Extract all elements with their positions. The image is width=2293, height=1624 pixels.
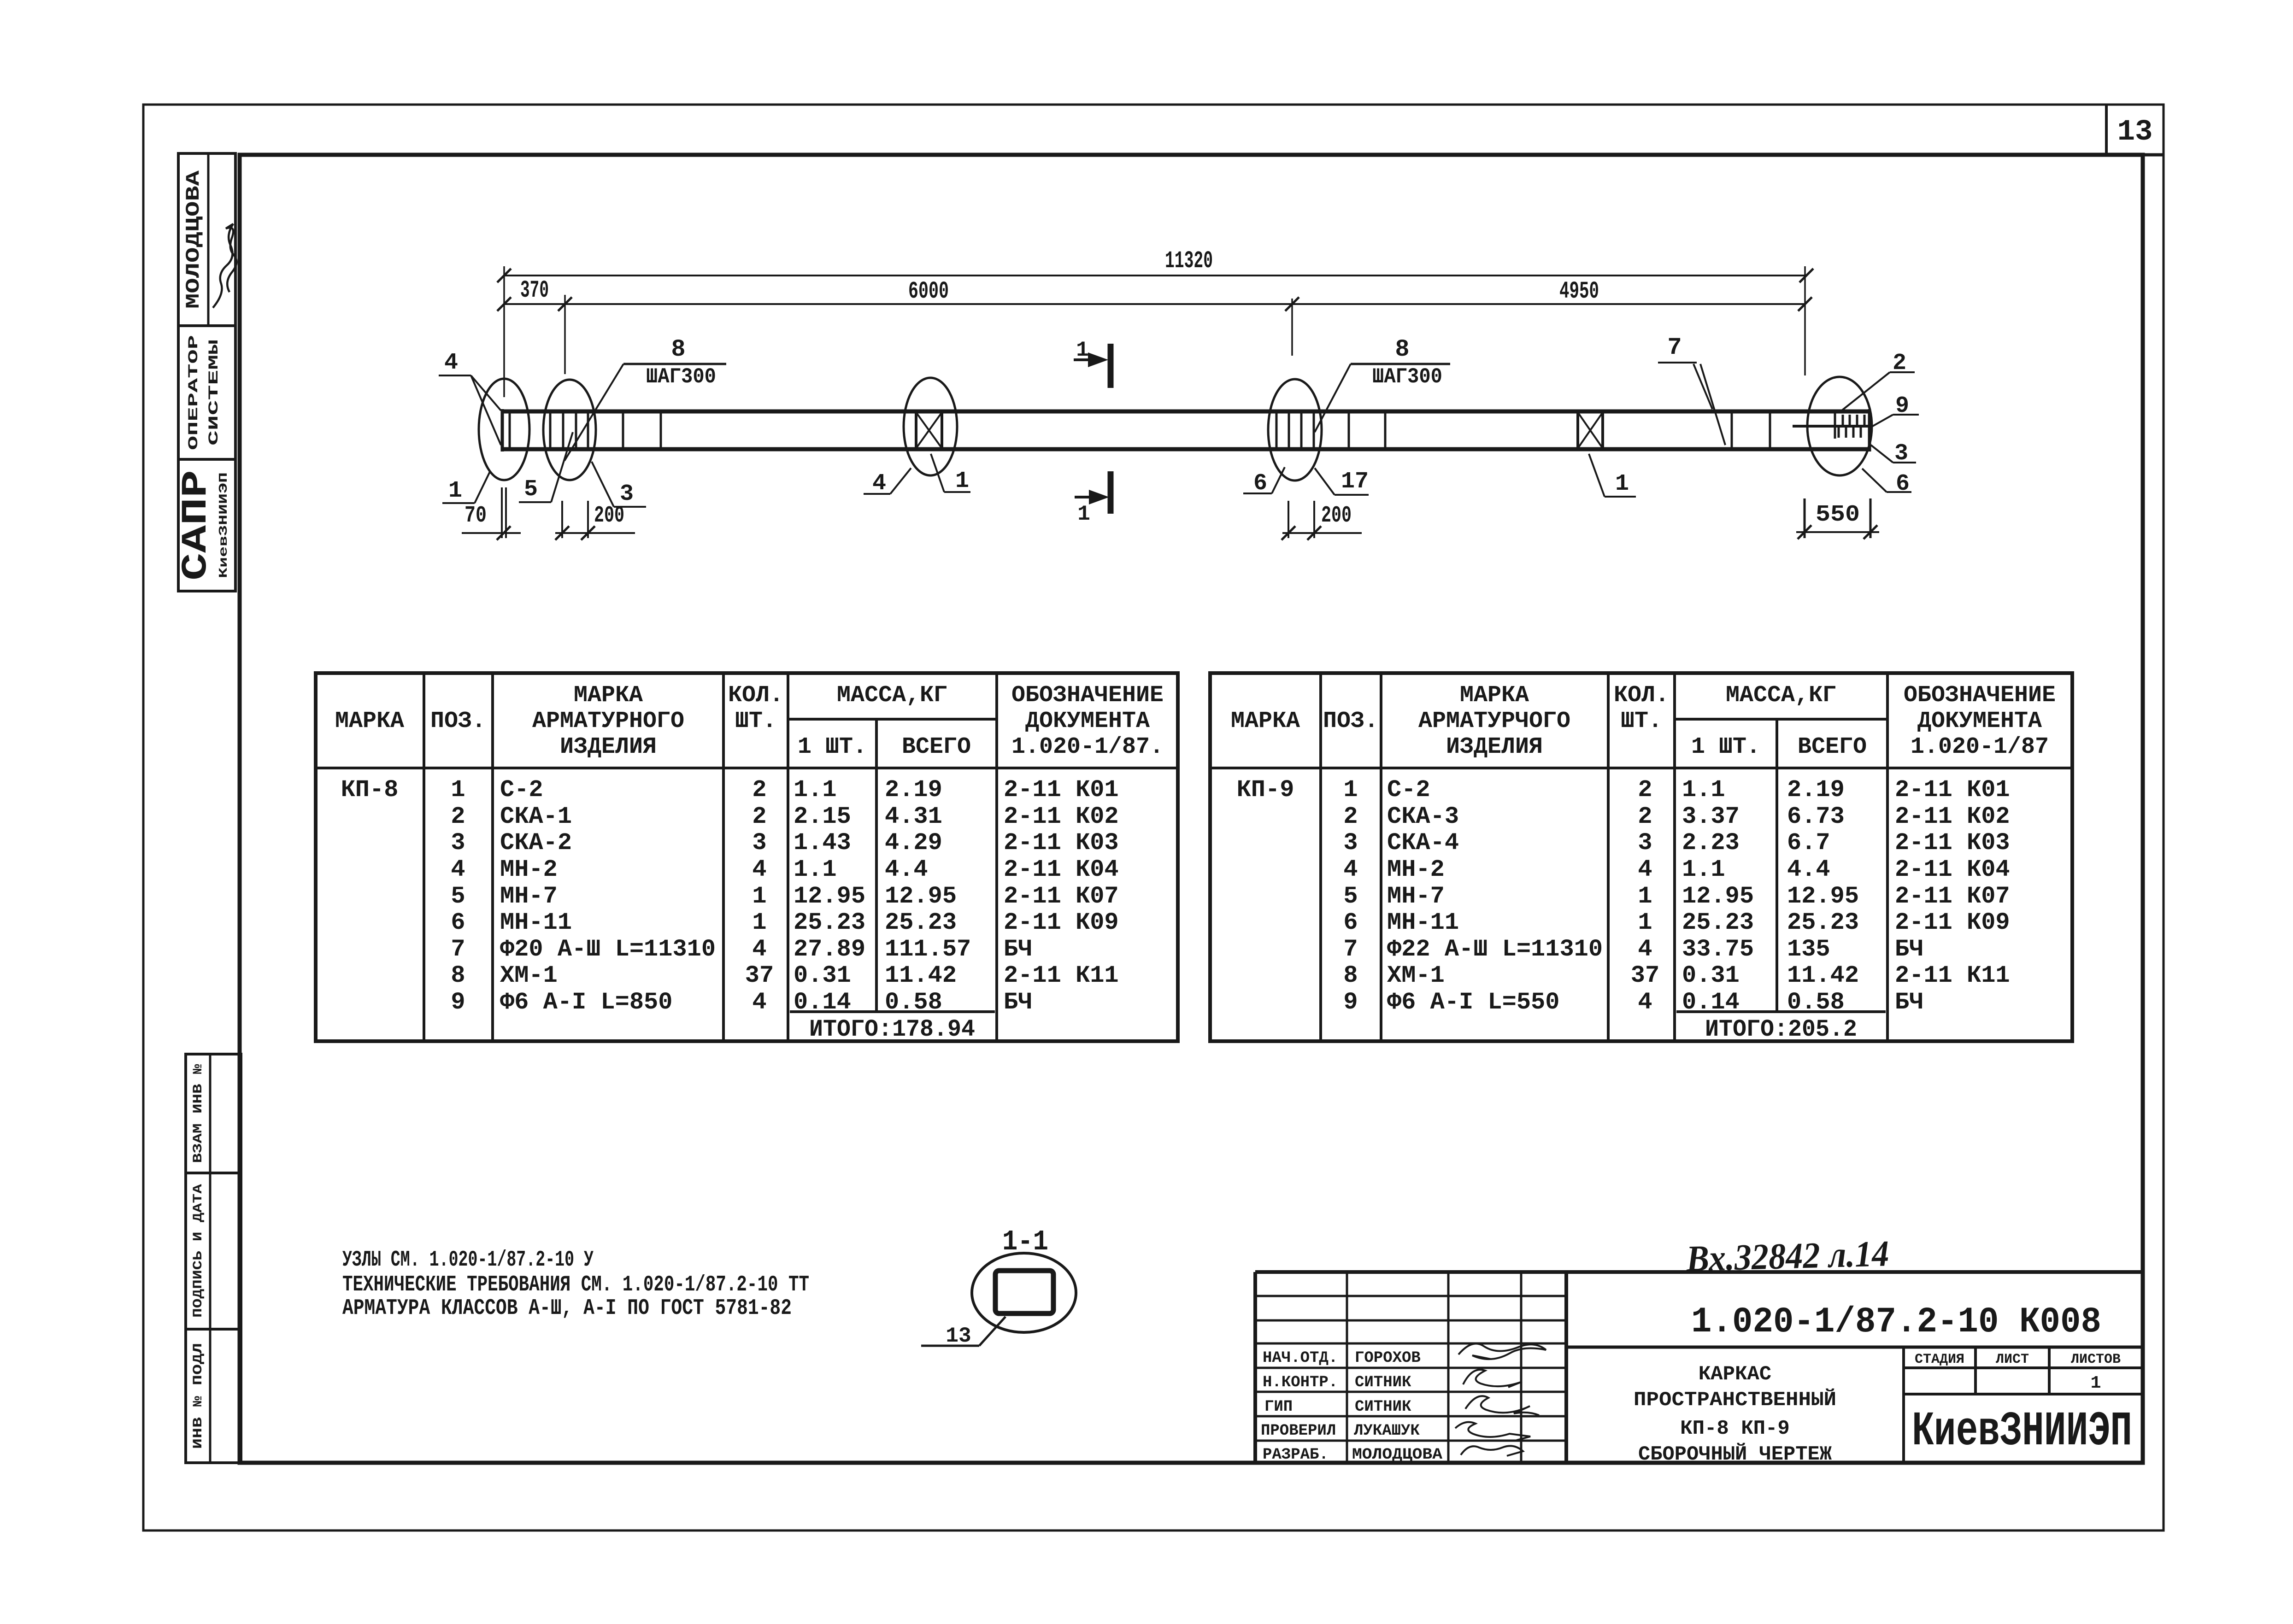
svg-text:4: 4 [451, 856, 465, 883]
svg-text:0.58: 0.58 [885, 989, 942, 1016]
svg-text:0.58: 0.58 [1787, 989, 1845, 1016]
svg-text:МАРКА: МАРКА [574, 682, 643, 709]
svg-text:37: 37 [1631, 962, 1659, 989]
svg-text:ХМ-1: ХМ-1 [500, 962, 558, 989]
svg-text:1: 1 [1638, 883, 1652, 910]
svg-text:3.37: 3.37 [1682, 803, 1740, 830]
svg-text:8: 8 [451, 962, 465, 989]
svg-text:12.95: 12.95 [1682, 883, 1754, 910]
svg-text:САПР: САПР [176, 470, 217, 580]
svg-text:25.23: 25.23 [1682, 909, 1754, 936]
svg-text:6: 6 [1343, 909, 1358, 936]
svg-text:АРМАТУРНОГО: АРМАТУРНОГО [532, 708, 684, 734]
svg-text:4: 4 [872, 470, 886, 497]
svg-text:ПОЗ.: ПОЗ. [430, 708, 486, 734]
svg-text:КП-9: КП-9 [1237, 776, 1294, 803]
svg-text:1.020-1/87.2-10 К008: 1.020-1/87.2-10 К008 [1691, 1302, 2101, 1343]
svg-text:0.31: 0.31 [1682, 962, 1740, 989]
svg-text:4.4: 4.4 [885, 856, 928, 883]
svg-text:9: 9 [451, 989, 465, 1016]
svg-text:КАРКАС: КАРКАС [1699, 1363, 1771, 1386]
svg-text:МАССА,КГ: МАССА,КГ [837, 682, 947, 709]
svg-text:РАЗРАБ.: РАЗРАБ. [1263, 1446, 1329, 1464]
svg-text:6.7: 6.7 [1787, 829, 1830, 856]
svg-text:6.73: 6.73 [1787, 803, 1845, 830]
svg-text:2-11 К11: 2-11 К11 [1004, 962, 1119, 989]
svg-text:МН-2: МН-2 [1387, 856, 1445, 883]
svg-text:8: 8 [671, 336, 685, 363]
svg-text:33.75: 33.75 [1682, 936, 1754, 963]
svg-text:БЧ: БЧ [1004, 989, 1032, 1016]
svg-text:4950: 4950 [1559, 278, 1599, 305]
svg-text:4.31: 4.31 [885, 803, 942, 830]
svg-text:1 ШТ.: 1 ШТ. [798, 734, 867, 760]
svg-text:1: 1 [1077, 502, 1090, 526]
svg-text:111.57: 111.57 [885, 936, 971, 963]
svg-text:УЗЛЫ СМ. 1.020-1/87.2-10 У: УЗЛЫ СМ. 1.020-1/87.2-10 У [342, 1248, 594, 1272]
svg-text:6: 6 [451, 909, 465, 936]
svg-text:2-11 К02: 2-11 К02 [1004, 803, 1119, 830]
svg-text:2-11 К01: 2-11 К01 [1895, 776, 2010, 803]
svg-text:2-11 К09: 2-11 К09 [1004, 909, 1119, 936]
svg-text:2-11 К09: 2-11 К09 [1895, 909, 2010, 936]
svg-text:7: 7 [451, 936, 465, 963]
svg-text:СКА-4: СКА-4 [1387, 829, 1459, 856]
svg-text:4: 4 [752, 989, 766, 1016]
svg-text:200: 200 [594, 503, 624, 529]
svg-text:1.1: 1.1 [794, 776, 837, 803]
svg-text:3: 3 [1638, 829, 1652, 856]
svg-text:СКА-3: СКА-3 [1387, 803, 1459, 830]
svg-text:4.4: 4.4 [1787, 856, 1830, 883]
svg-text:2: 2 [752, 776, 766, 803]
svg-text:ПРОСТРАНСТВЕННЫЙ: ПРОСТРАНСТВЕННЫЙ [1634, 1388, 1836, 1412]
svg-text:ХМ-1: ХМ-1 [1387, 962, 1445, 989]
svg-text:КиевЗНИИЭП: КиевЗНИИЭП [1912, 1404, 2132, 1459]
svg-text:БЧ: БЧ [1895, 989, 1923, 1016]
svg-text:7: 7 [1343, 936, 1358, 963]
svg-text:27.89: 27.89 [794, 936, 865, 963]
svg-text:5: 5 [1343, 883, 1358, 910]
svg-text:11320: 11320 [1165, 247, 1213, 275]
svg-text:ДОКУМЕНТА: ДОКУМЕНТА [1917, 708, 2042, 734]
svg-text:2-11 К04: 2-11 К04 [1895, 856, 2010, 883]
svg-text:2-11 К11: 2-11 К11 [1895, 962, 2010, 989]
svg-text:1: 1 [1638, 909, 1652, 936]
svg-text:ШТ.: ШТ. [1621, 708, 1662, 734]
svg-text:ЛИСТОВ: ЛИСТОВ [2071, 1352, 2121, 1367]
svg-text:СИТНИК: СИТНИК [1355, 1398, 1411, 1416]
svg-text:2-11 К03: 2-11 К03 [1004, 829, 1119, 856]
svg-text:КиевЗНИИЭП: КиевЗНИИЭП [217, 472, 230, 578]
svg-text:С-2: С-2 [1387, 776, 1430, 803]
svg-text:ОБОЗНАЧЕНИЕ: ОБОЗНАЧЕНИЕ [1904, 682, 2056, 709]
svg-text:Н.КОНТР.: Н.КОНТР. [1263, 1374, 1338, 1391]
svg-text:МАССА,КГ: МАССА,КГ [1726, 682, 1836, 709]
svg-text:СБОРОЧНЫЙ ЧЕРТЕЖ: СБОРОЧНЫЙ ЧЕРТЕЖ [1638, 1442, 1832, 1466]
svg-text:1 ШТ.: 1 ШТ. [1691, 734, 1760, 760]
svg-text:ИТОГО:178.94: ИТОГО:178.94 [809, 1016, 975, 1043]
svg-text:2-11 К07: 2-11 К07 [1004, 883, 1119, 910]
svg-text:1: 1 [1343, 776, 1358, 803]
svg-text:1.1: 1.1 [1682, 856, 1725, 883]
svg-text:ИЗДЕЛИЯ: ИЗДЕЛИЯ [560, 734, 657, 760]
svg-text:0.31: 0.31 [794, 962, 851, 989]
svg-text:МОЛОДЦОВА: МОЛОДЦОВА [1352, 1446, 1443, 1464]
svg-text:МН-11: МН-11 [500, 909, 572, 936]
svg-text:3: 3 [752, 829, 766, 856]
svg-text:1: 1 [752, 909, 766, 936]
svg-text:ТЕХНИЧЕСКИЕ ТРЕБОВАНИЯ СМ. 1.0: ТЕХНИЧЕСКИЕ ТРЕБОВАНИЯ СМ. 1.020-1/87.2-… [342, 1272, 809, 1297]
svg-text:ДОКУМЕНТА: ДОКУМЕНТА [1025, 708, 1150, 734]
svg-text:2: 2 [1638, 776, 1652, 803]
svg-text:ОБОЗНАЧЕНИЕ: ОБОЗНАЧЕНИЕ [1011, 682, 1164, 709]
svg-text:2-11 К07: 2-11 К07 [1895, 883, 2010, 910]
svg-text:12.95: 12.95 [885, 883, 957, 910]
svg-text:1: 1 [752, 883, 766, 910]
svg-text:2-11 К03: 2-11 К03 [1895, 829, 2010, 856]
svg-text:2.19: 2.19 [1787, 776, 1845, 803]
svg-text:12.95: 12.95 [1787, 883, 1859, 910]
svg-text:КП-8: КП-8 [341, 776, 399, 803]
svg-text:1: 1 [1076, 338, 1089, 362]
svg-text:Ф22 А-Ш L=11310: Ф22 А-Ш L=11310 [1387, 936, 1603, 963]
svg-text:25.23: 25.23 [885, 909, 957, 936]
svg-text:С-2: С-2 [500, 776, 543, 803]
svg-text:4: 4 [1638, 936, 1652, 963]
svg-text:135: 135 [1787, 936, 1830, 963]
svg-text:1.020-1/87.: 1.020-1/87. [1011, 734, 1164, 760]
svg-text:1: 1 [2091, 1373, 2101, 1393]
svg-text:3: 3 [1343, 829, 1358, 856]
svg-text:7: 7 [1667, 334, 1682, 361]
svg-text:МН-11: МН-11 [1387, 909, 1459, 936]
svg-text:КП-8 КП-9: КП-8 КП-9 [1680, 1417, 1790, 1440]
svg-text:СИСТЕМЫ: СИСТЕМЫ [206, 340, 222, 446]
svg-text:1: 1 [448, 478, 462, 504]
svg-text:МН-7: МН-7 [1387, 883, 1445, 910]
svg-text:ИТОГО:205.2: ИТОГО:205.2 [1705, 1016, 1857, 1043]
svg-text:2-11 К01: 2-11 К01 [1004, 776, 1119, 803]
svg-text:11.42: 11.42 [1787, 962, 1859, 989]
svg-text:1: 1 [955, 468, 969, 494]
svg-text:8: 8 [1395, 336, 1409, 363]
svg-text:1.1: 1.1 [794, 856, 837, 883]
svg-text:ГОРОХОВ: ГОРОХОВ [1355, 1349, 1421, 1367]
svg-text:БЧ: БЧ [1895, 936, 1923, 963]
svg-text:СКА-1: СКА-1 [500, 803, 572, 830]
svg-text:1: 1 [1615, 471, 1629, 497]
svg-text:5: 5 [451, 883, 465, 910]
svg-text:4: 4 [1638, 856, 1652, 883]
svg-text:СТАДИЯ: СТАДИЯ [1915, 1352, 1964, 1367]
svg-text:Ф20 А-Ш L=11310: Ф20 А-Ш L=11310 [500, 936, 716, 963]
svg-text:АРМАТУРЧОГО: АРМАТУРЧОГО [1418, 708, 1570, 734]
svg-text:КОЛ.: КОЛ. [1614, 682, 1669, 709]
svg-text:МОЛОДЦОВА: МОЛОДЦОВА [182, 170, 205, 309]
svg-text:4: 4 [1638, 989, 1652, 1016]
svg-text:200: 200 [1321, 503, 1352, 529]
svg-text:ЛУКАШУК: ЛУКАШУК [1354, 1422, 1420, 1440]
svg-text:13: 13 [2117, 116, 2153, 149]
svg-text:ЛИСТ: ЛИСТ [1996, 1352, 2029, 1367]
svg-text:2-11 К04: 2-11 К04 [1004, 856, 1119, 883]
svg-text:МАРКА: МАРКА [335, 708, 404, 734]
svg-text:КОЛ.: КОЛ. [728, 682, 783, 709]
svg-text:25.23: 25.23 [794, 909, 865, 936]
svg-text:8: 8 [1343, 962, 1358, 989]
svg-text:МАРКА: МАРКА [1460, 682, 1529, 709]
svg-text:6000: 6000 [908, 278, 949, 305]
svg-text:5: 5 [524, 476, 538, 503]
svg-text:БЧ: БЧ [1004, 936, 1032, 963]
svg-text:550: 550 [1816, 502, 1860, 528]
svg-text:17: 17 [1341, 469, 1369, 495]
svg-text:2-11 К02: 2-11 К02 [1895, 803, 2010, 830]
svg-text:1.1: 1.1 [1682, 776, 1725, 803]
svg-text:ГИП: ГИП [1264, 1398, 1293, 1416]
svg-text:2: 2 [1638, 803, 1652, 830]
svg-text:2: 2 [1343, 803, 1358, 830]
svg-text:СКА-2: СКА-2 [500, 829, 572, 856]
svg-text:ПОЗ.: ПОЗ. [1323, 708, 1378, 734]
svg-text:2: 2 [451, 803, 465, 830]
svg-text:Ф6 А-I L=850: Ф6 А-I L=850 [500, 989, 672, 1016]
svg-text:3: 3 [451, 829, 465, 856]
svg-text:МН-2: МН-2 [500, 856, 558, 883]
svg-text:1.020-1/87: 1.020-1/87 [1911, 734, 2049, 760]
svg-text:2.15: 2.15 [794, 803, 851, 830]
svg-text:ИЗДЕЛИЯ: ИЗДЕЛИЯ [1446, 734, 1543, 760]
svg-text:11.42: 11.42 [885, 962, 957, 989]
svg-text:6: 6 [1896, 471, 1910, 497]
svg-text:4: 4 [752, 936, 766, 963]
svg-text:0.14: 0.14 [1682, 989, 1740, 1016]
svg-text:ШАГ300: ШАГ300 [1372, 365, 1442, 389]
svg-text:НАЧ.ОТД.: НАЧ.ОТД. [1263, 1349, 1338, 1367]
svg-text:2.19: 2.19 [885, 776, 942, 803]
svg-text:1.43: 1.43 [794, 829, 851, 856]
svg-text:ОПЕРАТОР: ОПЕРАТОР [186, 335, 202, 450]
svg-text:1: 1 [451, 776, 465, 803]
svg-text:9: 9 [1343, 989, 1358, 1016]
svg-text:ШТ.: ШТ. [735, 708, 776, 734]
svg-text:Ф6 А-I L=550: Ф6 А-I L=550 [1387, 989, 1559, 1016]
svg-text:ШАГ300: ШАГ300 [646, 365, 716, 389]
svg-text:ВСЕГО: ВСЕГО [902, 734, 971, 760]
svg-text:13: 13 [946, 1324, 971, 1348]
svg-text:4.29: 4.29 [885, 829, 942, 856]
svg-text:2.23: 2.23 [1682, 829, 1740, 856]
svg-text:ПРОВЕРИЛ: ПРОВЕРИЛ [1261, 1422, 1336, 1440]
svg-text:ИНВ № ПОДЛ: ИНВ № ПОДЛ [191, 1343, 206, 1449]
svg-text:12.95: 12.95 [794, 883, 865, 910]
svg-text:ПОДПИСЬ И ДАТА: ПОДПИСЬ И ДАТА [191, 1184, 206, 1318]
svg-text:25.23: 25.23 [1787, 909, 1859, 936]
svg-text:0.14: 0.14 [794, 989, 851, 1016]
svg-text:370: 370 [520, 277, 549, 304]
svg-text:ВСЕГО: ВСЕГО [1798, 734, 1867, 760]
svg-text:70: 70 [464, 503, 487, 529]
svg-text:4: 4 [752, 856, 766, 883]
svg-text:ВЗАМ ИНВ №: ВЗАМ ИНВ № [191, 1064, 206, 1163]
svg-text:4: 4 [1343, 856, 1358, 883]
svg-text:СИТНИК: СИТНИК [1355, 1374, 1411, 1391]
svg-text:АРМАТУРА КЛАССОВ А-Ш, А-I ПО Г: АРМАТУРА КЛАССОВ А-Ш, А-I ПО ГОСТ 5781-8… [342, 1296, 792, 1321]
svg-text:4: 4 [444, 350, 458, 376]
svg-text:37: 37 [745, 962, 774, 989]
svg-text:МН-7: МН-7 [500, 883, 558, 910]
svg-text:2: 2 [752, 803, 766, 830]
svg-text:МАРКА: МАРКА [1231, 708, 1300, 734]
